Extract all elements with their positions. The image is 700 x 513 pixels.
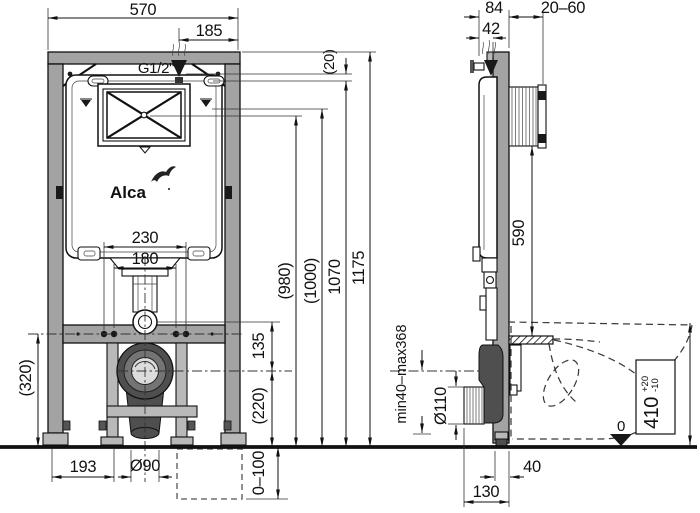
floor-datum-triangle <box>610 434 632 446</box>
dim-bolt-spacing-outer: 230 <box>132 229 159 247</box>
support-rail-left <box>107 343 118 437</box>
right-post <box>225 64 240 433</box>
support-rail-right <box>176 343 187 437</box>
dim-frame-depth: 84 <box>485 0 503 17</box>
dim-overall-height: 1175 <box>350 251 368 285</box>
lower-crossbar <box>107 406 197 417</box>
dim-crossbar-height: (320) <box>17 359 35 396</box>
side-cistern <box>473 77 497 340</box>
dim-box-to-shelf: 590 <box>510 220 528 247</box>
outlet-pipe <box>464 387 484 424</box>
dim-height-1000: (1000) <box>302 258 320 304</box>
recess-outline <box>177 449 242 499</box>
dim-seat-tol-minus: -10 <box>650 378 661 392</box>
dim-inlet-drop: (20) <box>321 49 338 75</box>
post-clip <box>225 186 232 199</box>
dim-water-inlet: G1/2" <box>138 60 174 77</box>
seat-height-label: 410 +20 -10 <box>640 376 663 429</box>
dim-drain-height: (220) <box>250 387 268 424</box>
dim-seat-height: 410 <box>641 397 663 429</box>
dim-inlet-offset: 185 <box>196 22 223 40</box>
dim-foot-spacing: 193 <box>70 458 97 476</box>
dim-drain-diameter: Ø90 <box>130 457 160 475</box>
inspection-opening <box>98 84 190 153</box>
floor-datum-label: 0 <box>617 418 625 435</box>
technical-drawing-page: Alca <box>0 0 700 513</box>
installation-frame-drawing: Alca <box>0 0 700 513</box>
dim-drain-range: min40–max368 <box>394 324 410 423</box>
dim-outlet-diameter: Ø110 <box>432 387 450 425</box>
dim-bolt-spacing-inner: 180 <box>132 250 159 268</box>
front-view: Alca <box>28 42 292 499</box>
left-post <box>48 64 63 433</box>
dim-outlet-offset: 130 <box>473 483 500 501</box>
flush-access-box <box>509 85 546 148</box>
dim-height-1070: 1070 <box>326 259 344 295</box>
dim-leg-adjust: 0–100 <box>250 451 268 496</box>
side-dimensions: 84 20–60 42 590 min40–max368 Ø110 410 +2… <box>394 0 690 507</box>
brand-logo-text: Alca <box>110 183 146 202</box>
wc-bracket <box>510 345 521 391</box>
dim-flush-to-drain: 135 <box>250 333 268 360</box>
dim-overall-width: 570 <box>130 1 157 19</box>
dim-inlet-depth: 42 <box>482 20 500 38</box>
dim-wall-finish-range: 20–60 <box>541 0 586 17</box>
dim-height-980: (980) <box>276 262 294 299</box>
post-clip <box>56 186 63 199</box>
toilet-shelf <box>509 336 553 344</box>
dim-profile-depth: 40 <box>523 458 541 476</box>
